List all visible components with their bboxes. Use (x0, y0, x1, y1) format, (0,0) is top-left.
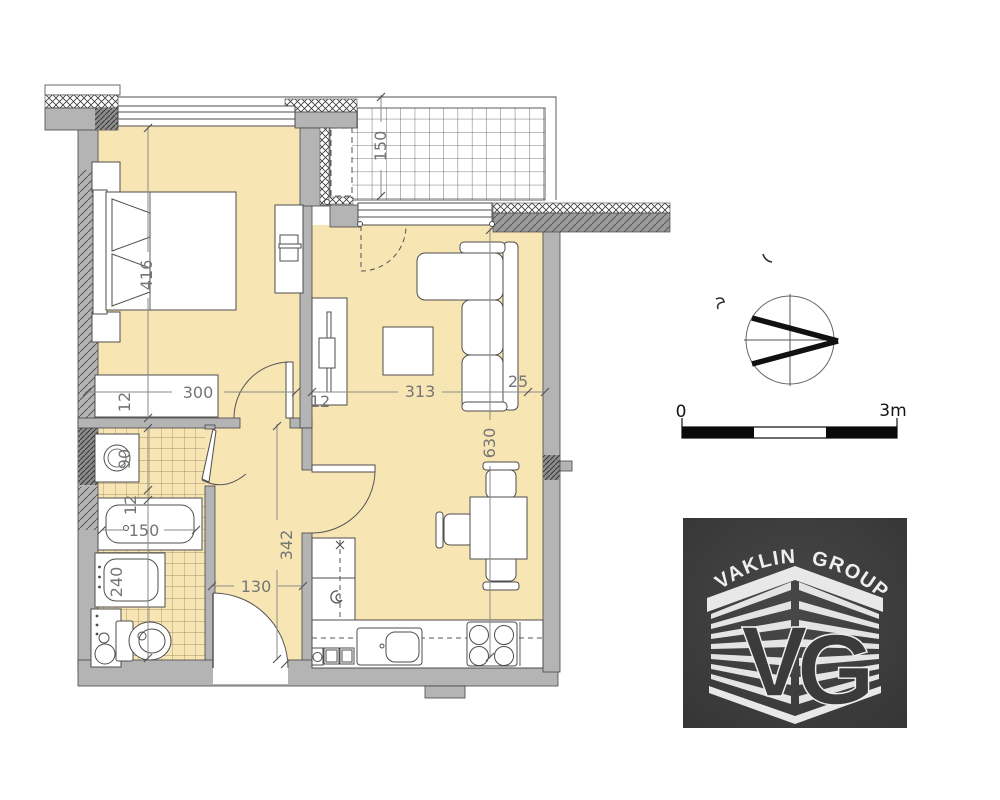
kitchen-hall-wall (302, 533, 312, 668)
dining-chair-back (436, 512, 443, 548)
dim-wall-bedroom-living: 12 (310, 392, 330, 411)
insulation-strip-topleft (45, 95, 118, 108)
dim-balcony-depth: 150 (371, 131, 390, 162)
kitchen-tall-unit (312, 538, 355, 620)
burner (495, 626, 514, 645)
compass-arrow (752, 318, 838, 364)
dim-living-length: 630 (480, 428, 499, 459)
scale-end-label: 3m (879, 401, 906, 421)
party-wall-hatch (493, 213, 670, 232)
sofa-armrest (460, 242, 505, 253)
dining-chair-back (483, 582, 519, 590)
burner (470, 626, 489, 645)
scale-start-label: 0 (676, 402, 687, 422)
dim-wall-bedroom-bath: 12 (115, 392, 134, 412)
dim-washer: 90 (115, 449, 134, 469)
parapet-strip (45, 85, 120, 95)
bathroom-vanity (95, 553, 165, 607)
wall-stub (425, 686, 465, 698)
nightstand (92, 312, 120, 342)
sofa-cushion (462, 300, 503, 355)
north-arrow (716, 254, 838, 386)
burner (495, 647, 514, 666)
nightstand (92, 162, 120, 192)
dim-living-width: 313 (405, 382, 436, 401)
dim-bedroom-length: 416 (137, 260, 156, 291)
window-bedroom (118, 106, 295, 126)
sink-bowl (386, 632, 419, 662)
dining-table (470, 497, 527, 559)
bedroom-door-leaf (286, 362, 293, 418)
living-door-leaf (312, 465, 375, 472)
dim-bath-lower: 240 (107, 567, 126, 598)
dim-hallway-width: 130 (241, 577, 272, 596)
dim-bathtub: 150 (129, 521, 160, 540)
tv-icon (279, 244, 301, 248)
dim-hallway-length: 342 (277, 530, 296, 561)
compass-crosshair (744, 294, 836, 386)
scale-bar: 0 3m (676, 401, 907, 438)
faucet (380, 644, 384, 648)
compass-mark (763, 254, 772, 262)
coffee-table (383, 327, 433, 375)
dim-sofa-offset: 25 (508, 372, 528, 391)
headboard (93, 190, 107, 314)
logo-letter-g: G (797, 614, 875, 726)
floor-plan-canvas: 416 150 300 12 313 25 630 342 130 90 12 … (0, 0, 1000, 800)
right-exterior-wall (543, 225, 560, 672)
balcony-planter (331, 128, 352, 196)
compass-mark (716, 298, 724, 309)
dim-wall-bath-mid: 12 (121, 495, 140, 515)
page: 416 150 300 12 313 25 630 342 130 90 12 … (0, 0, 1000, 800)
burner (470, 647, 489, 666)
dim-bedroom-width: 300 (183, 383, 214, 402)
company-logo: V G VAKLIN GROUP (683, 518, 907, 728)
sofa-armrest (462, 402, 507, 411)
dining-chair-back (483, 462, 519, 470)
insulation-strip-right (493, 203, 670, 213)
window-balcony-door (358, 203, 492, 225)
bedroom-bottom-wall (78, 418, 240, 428)
insulation-strip-t-wall (285, 99, 357, 112)
